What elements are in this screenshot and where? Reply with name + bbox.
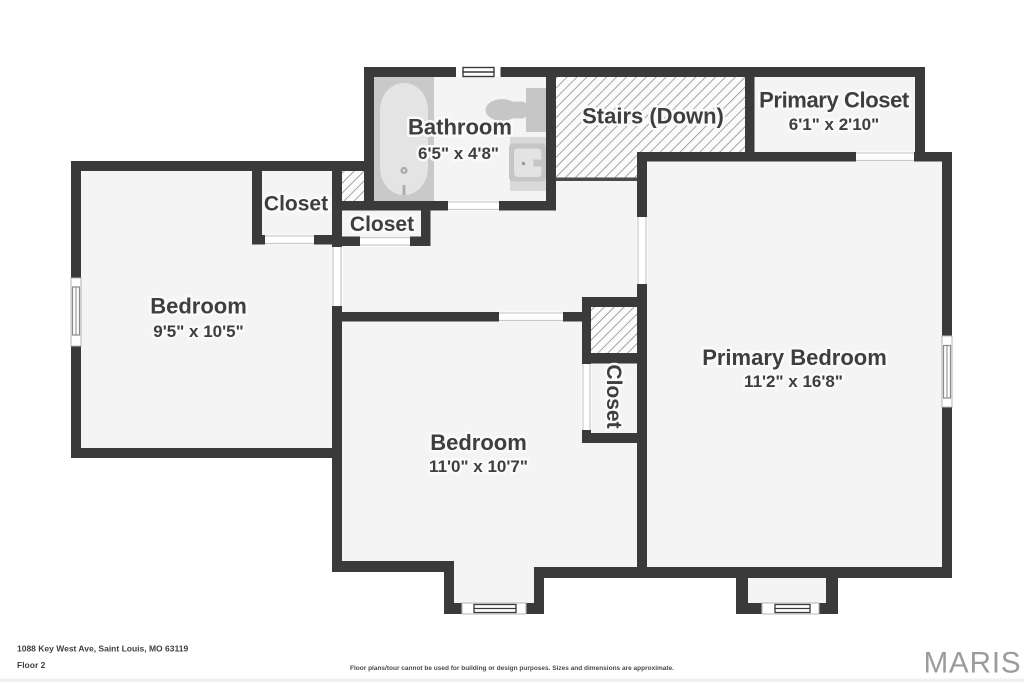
svg-text:11'0" x 10'7": 11'0" x 10'7" <box>429 457 528 476</box>
svg-text:Closet: Closet <box>264 193 328 216</box>
svg-text:6'1" x 2'10": 6'1" x 2'10" <box>789 115 879 134</box>
svg-text:Stairs (Down): Stairs (Down) <box>582 104 724 129</box>
svg-text:Bathroom: Bathroom <box>408 115 512 140</box>
svg-text:6'5" x 4'8": 6'5" x 4'8" <box>418 144 499 163</box>
svg-text:Closet: Closet <box>350 213 414 236</box>
svg-text:Primary Closet: Primary Closet <box>759 88 910 113</box>
svg-text:Bedroom: Bedroom <box>430 430 527 455</box>
svg-text:Floor plans/tour cannot be use: Floor plans/tour cannot be used for buil… <box>350 665 674 672</box>
svg-text:Closet: Closet <box>602 364 625 428</box>
svg-text:9'5" x 10'5": 9'5" x 10'5" <box>153 322 243 341</box>
svg-text:Primary Bedroom: Primary Bedroom <box>702 345 887 370</box>
svg-text:Floor 2: Floor 2 <box>17 660 46 670</box>
svg-text:1088 Key West Ave, Saint Louis: 1088 Key West Ave, Saint Louis, MO 63119 <box>17 644 188 654</box>
svg-text:MARIS: MARIS <box>924 647 1022 680</box>
svg-text:Bedroom: Bedroom <box>150 294 247 319</box>
svg-text:11'2" x 16'8": 11'2" x 16'8" <box>744 372 843 391</box>
